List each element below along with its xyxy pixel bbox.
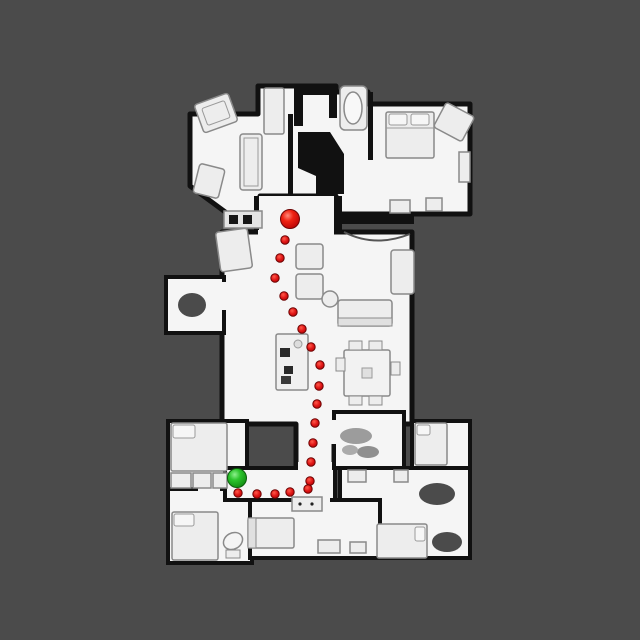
nightstand	[390, 200, 410, 213]
closet	[213, 473, 227, 488]
toilet-tank	[226, 550, 240, 558]
waypoint-dot	[313, 400, 321, 408]
red-sphere-marker	[281, 210, 300, 229]
dining-chair	[369, 341, 382, 350]
waypoint-dot	[289, 308, 297, 316]
waypoint-dot	[311, 419, 319, 427]
desk-item	[281, 376, 291, 384]
desk	[276, 334, 308, 390]
armchair	[296, 244, 323, 269]
sofa-back	[338, 318, 392, 326]
pillow	[411, 114, 429, 125]
dresser	[459, 152, 470, 182]
bench	[264, 88, 284, 134]
map-layer	[0, 0, 640, 640]
waypoint-dot	[306, 477, 314, 485]
waypoint-dot	[307, 343, 315, 351]
pillow	[174, 514, 194, 526]
closet	[171, 473, 191, 488]
dining-chair	[391, 362, 400, 375]
debris	[357, 446, 379, 458]
waypoint-dot	[280, 292, 288, 300]
console	[292, 497, 322, 511]
waypoint-dot	[304, 485, 312, 493]
shelf	[348, 470, 366, 482]
debris	[342, 445, 358, 455]
waypoint-dot	[309, 439, 317, 447]
desk-item	[280, 348, 290, 357]
console-knob	[310, 502, 313, 505]
pillow	[173, 425, 195, 438]
waypoint-dot	[307, 458, 315, 466]
scan-hole	[432, 532, 462, 552]
wall	[329, 92, 337, 118]
wall	[294, 86, 303, 126]
table	[318, 540, 340, 553]
doorway	[216, 282, 230, 310]
table	[350, 542, 366, 553]
pillow	[417, 425, 430, 435]
waypoint-dot	[234, 489, 242, 497]
couch	[391, 250, 414, 294]
tv-wall	[336, 214, 414, 224]
waypoint-dot	[281, 236, 289, 244]
waypoint-dot	[286, 488, 294, 496]
table-center	[362, 368, 372, 378]
pillow	[389, 114, 407, 125]
armchair	[215, 228, 252, 272]
debris	[340, 428, 372, 444]
cabinet-drawer	[243, 215, 252, 224]
wall	[368, 92, 373, 160]
waypoint-dot	[316, 361, 324, 369]
waypoint-dot	[298, 325, 306, 333]
waypoint-dot	[271, 490, 279, 498]
dining-chair	[336, 358, 345, 371]
wall	[288, 114, 293, 196]
scan-hole	[419, 483, 455, 505]
dining-chair	[349, 341, 362, 350]
topdown-map-viewport	[0, 0, 640, 640]
desk-item	[294, 340, 302, 348]
doorway	[328, 420, 340, 444]
console-knob	[298, 502, 301, 505]
armchair	[296, 274, 323, 299]
green-sphere-marker	[228, 469, 247, 488]
floorplan-svg	[0, 0, 640, 640]
waypoint-dot	[315, 382, 323, 390]
desk-item	[284, 366, 293, 374]
scan-hole	[178, 293, 206, 317]
side-table	[322, 291, 338, 307]
pillow	[415, 527, 425, 541]
shelf	[394, 470, 408, 482]
waypoint-dot	[271, 274, 279, 282]
closet	[193, 473, 211, 488]
waypoint-dot	[276, 254, 284, 262]
waypoint-dot	[253, 490, 261, 498]
bathtub-basin	[344, 92, 362, 124]
dining-chair	[369, 396, 382, 405]
cabinet-drawer	[229, 215, 238, 224]
couch-back	[248, 518, 256, 548]
dining-chair	[349, 396, 362, 405]
nightstand	[426, 198, 442, 211]
sofa	[240, 134, 262, 190]
